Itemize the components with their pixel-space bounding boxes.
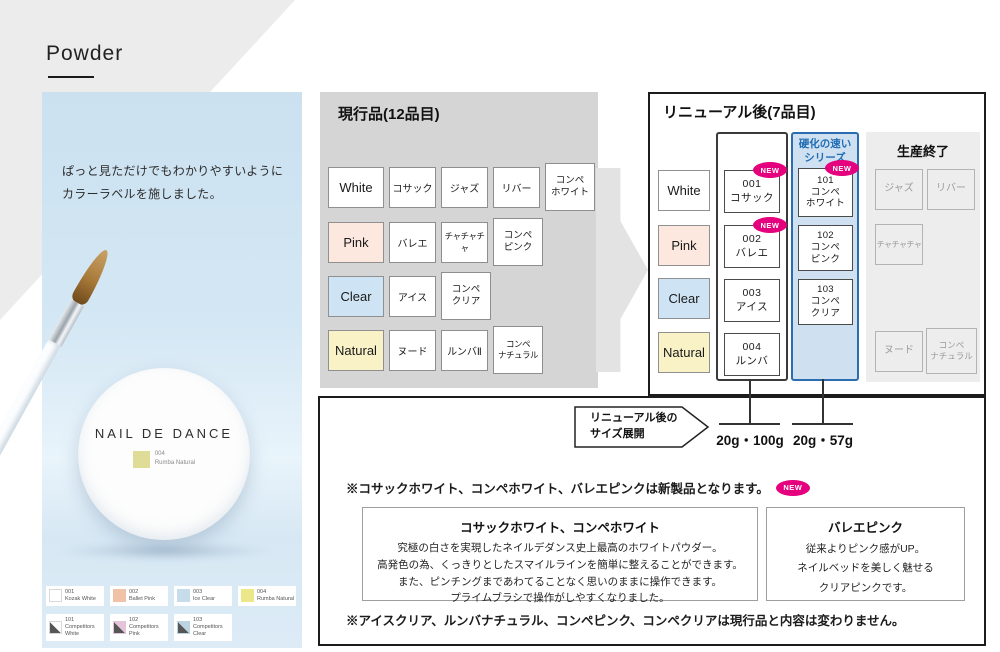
legend-item: 102Competitors Pink <box>110 614 168 641</box>
product-name: ルンバ <box>736 355 769 369</box>
swatch-rumba-natural <box>241 589 254 602</box>
discontinued-box: コンペ ナチュラル <box>926 328 977 374</box>
product-box-003: 003アイス <box>724 279 780 322</box>
legend-name: Ballet Pink <box>129 596 155 603</box>
legend-code: 003 <box>193 589 215 596</box>
legend-name: Competitors Clear <box>193 624 230 638</box>
color-label-white: White <box>658 170 710 211</box>
legend-name: Ice Clear <box>193 596 215 603</box>
current-row-clear: Clear アイス コンペ クリア <box>328 272 491 320</box>
product-photo-panel: ぱっと見ただけでもわかりやすいように カラーラベルを施しました。 NAIL DE… <box>42 92 302 648</box>
title-underline <box>48 76 94 78</box>
discontinued-title: 生産終了 <box>866 141 980 160</box>
product-box: バレエ <box>389 222 436 263</box>
product-box-004: 004ルンバ <box>724 333 780 376</box>
connector-bar-standard <box>719 423 780 425</box>
color-label-pink: Pink <box>658 225 710 266</box>
product-box: リバー <box>493 167 540 208</box>
swatch-legend-row-1: 001Kozak White 002Ballet Pink 003Ice Cle… <box>46 586 296 606</box>
color-label-white: White <box>328 167 384 208</box>
renewal-title: リニューアル後(7品目) <box>663 101 816 122</box>
jar-swatch-natural <box>133 451 150 468</box>
legend-code: 004 <box>257 589 294 596</box>
legend-item: 002Ballet Pink <box>110 586 168 606</box>
color-label-pink: Pink <box>328 222 384 263</box>
connector-line-standard <box>749 379 751 424</box>
current-products-title: 現行品(12品目) <box>338 103 440 124</box>
size-expansion-label: リニューアル後の サイズ展開 <box>590 411 677 443</box>
swatch-competitors-pink <box>113 621 126 634</box>
note-text: ※コサックホワイト、コンペホワイト、バレエピンクは新製品となります。 <box>346 478 769 497</box>
info-box-pink: バレエピンク 従来よりピンク感がUP。 ネイルベッドを美しく魅せる クリアピンク… <box>766 507 965 601</box>
current-row-white: White コサック ジャズ リバー コンペ ホワイト <box>328 163 595 211</box>
legend-item: 101Competitors White <box>46 614 104 641</box>
legend-item: 103Competitors Clear <box>174 614 232 641</box>
product-number: 101 <box>806 175 845 187</box>
brush-ferrule <box>48 299 83 347</box>
new-badge: NEW <box>753 162 787 178</box>
legend-code: 002 <box>129 589 155 596</box>
jar-label-text: 004 Rumba Natural <box>155 450 195 468</box>
product-box: コンペ ナチュラル <box>493 326 543 374</box>
product-box: ジャズ <box>441 167 488 208</box>
product-number: 003 <box>736 287 768 301</box>
jar-color-label: 004 Rumba Natural <box>78 450 250 468</box>
swatch-ice-clear <box>177 589 190 602</box>
standard-series-column: NEW 001コサック NEW 002バレエ 003アイス 004ルンバ <box>716 132 788 381</box>
jar-brand-text: NAIL DE DANCE <box>78 426 250 441</box>
transition-arrow-icon <box>596 168 648 372</box>
legend-code: 102 <box>129 617 166 624</box>
page-title: Powder <box>46 42 123 66</box>
legend-item: 001Kozak White <box>46 586 104 606</box>
legend-item: 003Ice Clear <box>174 586 232 606</box>
jar-label-code: 004 <box>155 450 195 459</box>
product-number: 004 <box>736 341 769 355</box>
product-name: コンペ ホワイト <box>806 187 845 211</box>
swatch-legend-row-2: 101Competitors White 102Competitors Pink… <box>46 614 232 641</box>
product-box: コンペ ピンク <box>493 218 543 266</box>
product-name: コンペ クリア <box>811 296 840 320</box>
product-box: ルンバⅡ <box>441 330 488 371</box>
discontinued-box: リバー <box>927 169 975 210</box>
new-badge: NEW <box>753 217 787 233</box>
info-box-title: バレエピンク <box>767 517 964 536</box>
product-name: バレエ <box>736 247 769 261</box>
swatch-competitors-white <box>49 621 62 634</box>
color-label-natural: Natural <box>658 332 710 373</box>
current-products-section: 現行品(12品目) White コサック ジャズ リバー コンペ ホワイト Pi… <box>320 92 598 388</box>
product-number: 103 <box>811 284 840 296</box>
product-name: コサック <box>730 192 774 206</box>
swatch-kozak-white <box>49 589 62 602</box>
product-box: チャチャチャ <box>441 222 488 263</box>
floor-shadow <box>58 542 272 560</box>
swatch-ballet-pink <box>113 589 126 602</box>
product-number: 001 <box>730 178 774 192</box>
powder-lineup-infographic: Powder ぱっと見ただけでもわかりやすいように カラーラベルを施しました。 … <box>0 0 1000 652</box>
product-name: アイス <box>736 301 768 315</box>
renewal-products-section: リニューアル後(7品目) White Pink Clear Natural NE… <box>648 92 986 396</box>
info-box-body: 従来よりピンク感がUP。 ネイルベッドを美しく魅せる クリアピンクです。 <box>767 540 964 598</box>
current-row-natural: Natural ヌード ルンバⅡ コンペ ナチュラル <box>328 326 543 374</box>
legend-name: Kozak White <box>65 596 96 603</box>
legend-code: 101 <box>65 617 102 624</box>
discontinued-panel: 生産終了 ジャズ リバー チャチャチャ ヌード コンペ ナチュラル <box>866 132 980 382</box>
color-label-natural: Natural <box>328 330 384 371</box>
legend-item: 004Rumba Natural <box>238 586 296 606</box>
note-new-products: ※コサックホワイト、コンペホワイト、バレエピンクは新製品となります。 NEW <box>346 478 810 497</box>
discontinued-box: ジャズ <box>875 169 923 210</box>
product-number: 102 <box>811 230 840 242</box>
legend-name: Competitors Pink <box>129 624 166 638</box>
discontinued-box: チャチャチャ <box>875 224 923 265</box>
product-number: 002 <box>736 233 769 247</box>
connector-line-fast <box>822 379 824 424</box>
info-box-white: コサックホワイト、コンペホワイト 究極の白さを実現したネイルデダンス史上最高のホ… <box>362 507 758 601</box>
product-box-102: 102コンペ ピンク <box>798 225 853 271</box>
product-box: コンペ クリア <box>441 272 491 320</box>
swatch-competitors-clear <box>177 621 190 634</box>
color-label-clear: Clear <box>658 278 710 319</box>
new-badge: NEW <box>825 160 859 176</box>
note-text: ※アイスクリア、ルンバナチュラル、コンペピンク、コンペクリアは現行品と内容は変わ… <box>346 610 905 629</box>
color-label-caption: ぱっと見ただけでもわかりやすいように カラーラベルを施しました。 <box>62 160 287 207</box>
color-label-clear: Clear <box>328 276 384 317</box>
size-label-fast: 20g・57g <box>779 429 867 449</box>
note-unchanged: ※アイスクリア、ルンバナチュラル、コンペピンク、コンペクリアは現行品と内容は変わ… <box>346 610 905 629</box>
connector-bar-fast <box>792 423 853 425</box>
legend-name: Rumba Natural <box>257 596 294 603</box>
brush-handle: NAIL DE DANCE <box>0 339 61 558</box>
current-row-pink: Pink バレエ チャチャチャ コンペ ピンク <box>328 218 543 266</box>
product-name: コンペ ピンク <box>811 242 840 266</box>
product-box-103: 103コンペ クリア <box>798 279 853 325</box>
brush-bristles <box>69 246 113 307</box>
discontinued-box: ヌード <box>875 331 923 372</box>
fast-curing-series-column: 硬化の速い シリーズ NEW 101コンペ ホワイト 102コンペ ピンク 10… <box>791 132 859 381</box>
new-badge: NEW <box>776 480 810 496</box>
product-box: ヌード <box>389 330 436 371</box>
product-box: コサック <box>389 167 436 208</box>
legend-code: 001 <box>65 589 96 596</box>
product-box: アイス <box>389 276 436 317</box>
legend-code: 103 <box>193 617 230 624</box>
jar-label-name: Rumba Natural <box>155 459 195 468</box>
info-box-title: コサックホワイト、コンペホワイト <box>363 517 757 536</box>
powder-jar: NAIL DE DANCE 004 Rumba Natural <box>78 368 250 540</box>
info-box-body: 究極の白さを実現したネイルデダンス史上最高のホワイトパウダー。 高発色の為、くっ… <box>363 540 757 607</box>
legend-name: Competitors White <box>65 624 102 638</box>
product-box: コンペ ホワイト <box>545 163 595 211</box>
size-expansion-pointer: リニューアル後の サイズ展開 <box>574 406 710 448</box>
